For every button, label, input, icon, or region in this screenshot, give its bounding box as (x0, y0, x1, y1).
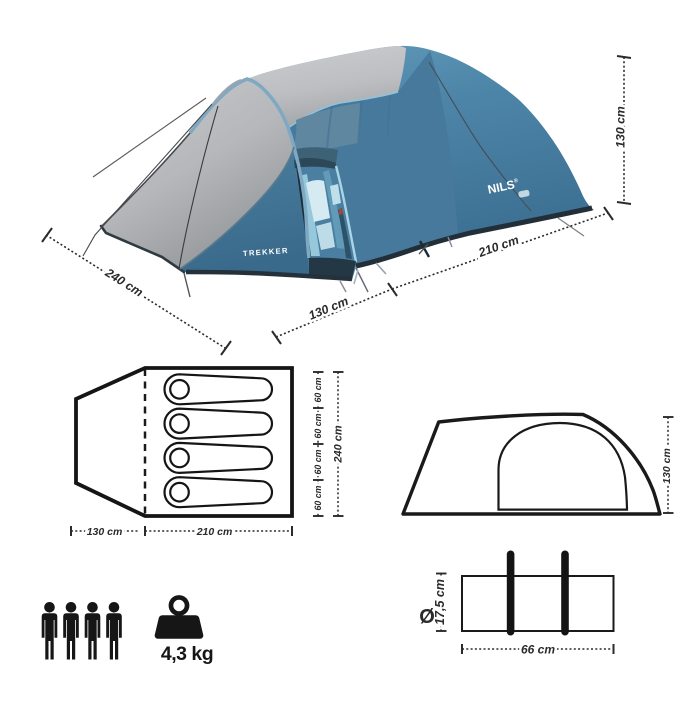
svg-text:66 cm: 66 cm (521, 643, 555, 657)
svg-text:130 cm: 130 cm (87, 526, 123, 538)
svg-text:130 cm: 130 cm (614, 106, 628, 148)
svg-text:60 cm: 60 cm (313, 485, 323, 510)
svg-text:240 cm: 240 cm (333, 425, 345, 464)
svg-text:Ø: Ø (419, 606, 435, 628)
svg-text:130 cm: 130 cm (661, 448, 673, 484)
svg-text:4,3 kg: 4,3 kg (161, 643, 213, 665)
svg-text:60 cm: 60 cm (313, 449, 323, 474)
svg-text:210 cm: 210 cm (196, 526, 233, 538)
svg-text:60 cm: 60 cm (313, 413, 323, 438)
svg-text:60 cm: 60 cm (313, 377, 323, 402)
svg-text:17,5 cm: 17,5 cm (433, 579, 447, 625)
